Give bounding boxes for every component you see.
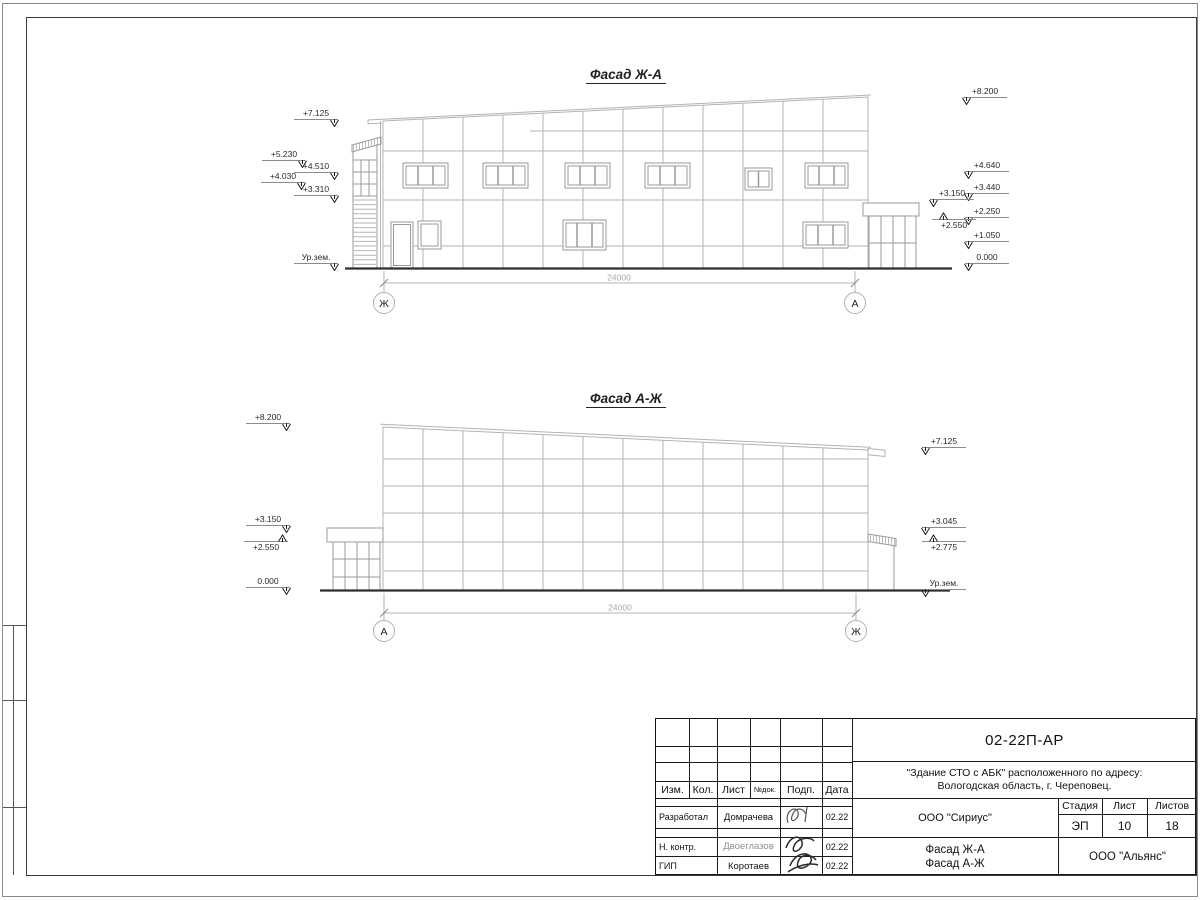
level-arrow-icon — [928, 199, 939, 207]
role-name: Домрачева — [717, 806, 780, 828]
level-arrow-icon — [938, 212, 949, 220]
col-list: Лист — [717, 781, 750, 798]
elevation-mark: +3.150 — [930, 188, 974, 200]
elevation-mark: +4.030 — [261, 171, 305, 183]
facade1-title: Фасад Ж-А — [526, 67, 726, 82]
elevation-mark: +3.045 — [922, 516, 966, 528]
entrance-vestibule — [863, 203, 919, 268]
tb-line — [656, 828, 852, 829]
entrance-vestibule — [327, 528, 383, 590]
signature — [780, 801, 822, 831]
role-date: 02.22 — [822, 806, 852, 828]
role-label: Разработал — [656, 806, 717, 828]
axis-left-label: А — [380, 626, 387, 638]
title-block: Изм. Кол. Лист №док. Подп. Дата Разработ… — [655, 718, 1196, 875]
col-data: Дата — [822, 781, 852, 798]
level-arrow-icon — [277, 534, 288, 542]
subject-line1: Фасад Ж-А — [925, 843, 984, 857]
axis-right-label: А — [851, 298, 858, 310]
elevation-mark: +2.550 — [244, 541, 288, 553]
line — [3, 807, 26, 808]
dim-text: 24000 — [608, 603, 632, 613]
elevation-mark: +4.640 — [965, 160, 1009, 172]
sheets-value: 18 — [1147, 814, 1197, 837]
role-label: ГИП — [656, 856, 717, 876]
elevation-mark: +7.125 — [922, 436, 966, 448]
elevation-mark: Ур.зем. — [922, 578, 966, 590]
level-arrow-icon — [963, 263, 974, 271]
stage-value: ЭП — [1058, 814, 1102, 837]
stage-header: Стадия — [1058, 798, 1102, 814]
elevation-mark: 0.000 — [965, 252, 1009, 264]
drawing-sheet: Фасад Ж-А — [0, 0, 1200, 900]
elevation-mark: +2.250 — [965, 206, 1009, 218]
project-address: "Здание СТО с АБК" расположенного по адр… — [852, 761, 1197, 798]
col-ndok: №док. — [750, 781, 780, 798]
facade-azh-drawing: 24000 А Ж — [320, 410, 965, 650]
signature — [780, 832, 822, 876]
col-podp: Подп. — [780, 781, 822, 798]
company-name: ООО "Альянс" — [1058, 837, 1197, 876]
address-line1: "Здание СТО с АБК" расположенного по адр… — [907, 767, 1143, 780]
address-line2: Вологодская область, г. Череповец. — [938, 780, 1112, 793]
level-arrow-icon — [920, 589, 931, 597]
elevation-mark: +8.200 — [246, 412, 290, 424]
elevation-mark: +7.125 — [294, 108, 338, 120]
org-name: ООО "Сириус" — [852, 798, 1058, 837]
axis-left-label: Ж — [379, 298, 389, 310]
sheets-header: Листов — [1147, 798, 1197, 814]
elevation-mark: +8.200 — [963, 86, 1007, 98]
axis-right-label: Ж — [851, 626, 861, 638]
col-kol: Кол. — [689, 781, 717, 798]
line — [3, 700, 26, 701]
level-arrow-icon — [928, 534, 939, 542]
elevation-mark: +5.230 — [262, 149, 306, 161]
role-date: 02.22 — [822, 837, 852, 856]
col-izm: Изм. — [656, 781, 689, 798]
role-name: Коротаев — [717, 856, 780, 876]
role-name: Двоеглазов — [717, 837, 780, 856]
level-arrow-icon — [281, 525, 292, 533]
side-canopy — [868, 534, 896, 590]
dim-text: 24000 — [607, 273, 631, 283]
sheet-header: Лист — [1102, 798, 1147, 814]
level-arrow-icon — [281, 587, 292, 595]
line — [3, 625, 26, 626]
level-arrow-icon — [961, 97, 972, 105]
facade-zha-drawing: 24000 Ж А — [340, 85, 985, 330]
tb-line — [656, 746, 852, 747]
elevation-mark: +3.150 — [246, 514, 290, 526]
tb-line — [656, 798, 852, 799]
level-arrow-icon — [329, 119, 340, 127]
role-label: Н. контр. — [656, 837, 717, 856]
level-arrow-icon — [963, 171, 974, 179]
elevation-mark: +3.310 — [294, 184, 338, 196]
elevation-mark: 0.000 — [246, 576, 290, 588]
elevation-mark: +2.775 — [922, 541, 966, 553]
stair-tower — [352, 137, 381, 268]
tb-line — [656, 762, 852, 763]
facade2-title: Фасад А-Ж — [526, 391, 726, 406]
sheet-subject: Фасад Ж-А Фасад А-Ж — [852, 837, 1058, 876]
elevation-mark: +1.050 — [965, 230, 1009, 242]
level-arrow-icon — [329, 195, 340, 203]
level-arrow-icon — [329, 263, 340, 271]
line — [13, 625, 14, 875]
dimension — [374, 593, 867, 642]
sheet-value: 10 — [1102, 814, 1147, 837]
level-arrow-icon — [329, 172, 340, 180]
subject-line2: Фасад А-Ж — [925, 857, 984, 871]
level-arrow-icon — [920, 447, 931, 455]
role-date: 02.22 — [822, 856, 852, 876]
level-arrow-icon — [281, 423, 292, 431]
elevation-mark: Ур.зем. — [294, 252, 338, 264]
level-arrow-icon — [963, 241, 974, 249]
doc-number: 02-22П-АР — [852, 719, 1197, 761]
